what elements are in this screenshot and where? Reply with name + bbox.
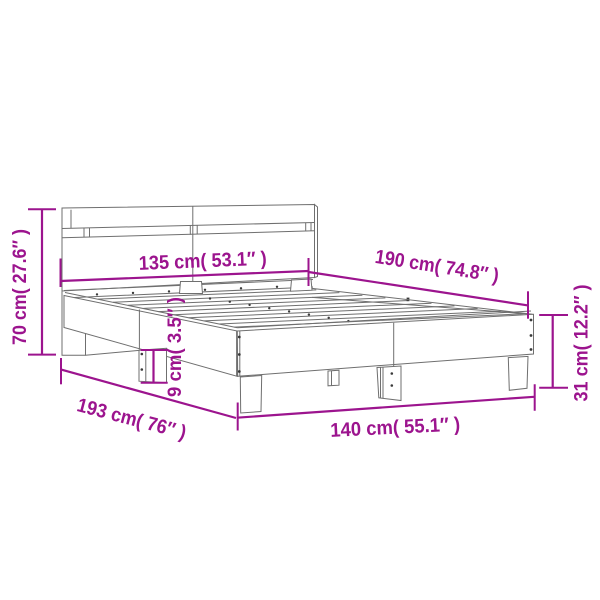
svg-text:31 cm( 12.2″ ): 31 cm( 12.2″ ) [571, 285, 593, 402]
svg-text:9 cm( 3.5″ ): 9 cm( 3.5″ ) [164, 297, 186, 397]
svg-text:70 cm( 27.6″ ): 70 cm( 27.6″ ) [9, 229, 31, 345]
